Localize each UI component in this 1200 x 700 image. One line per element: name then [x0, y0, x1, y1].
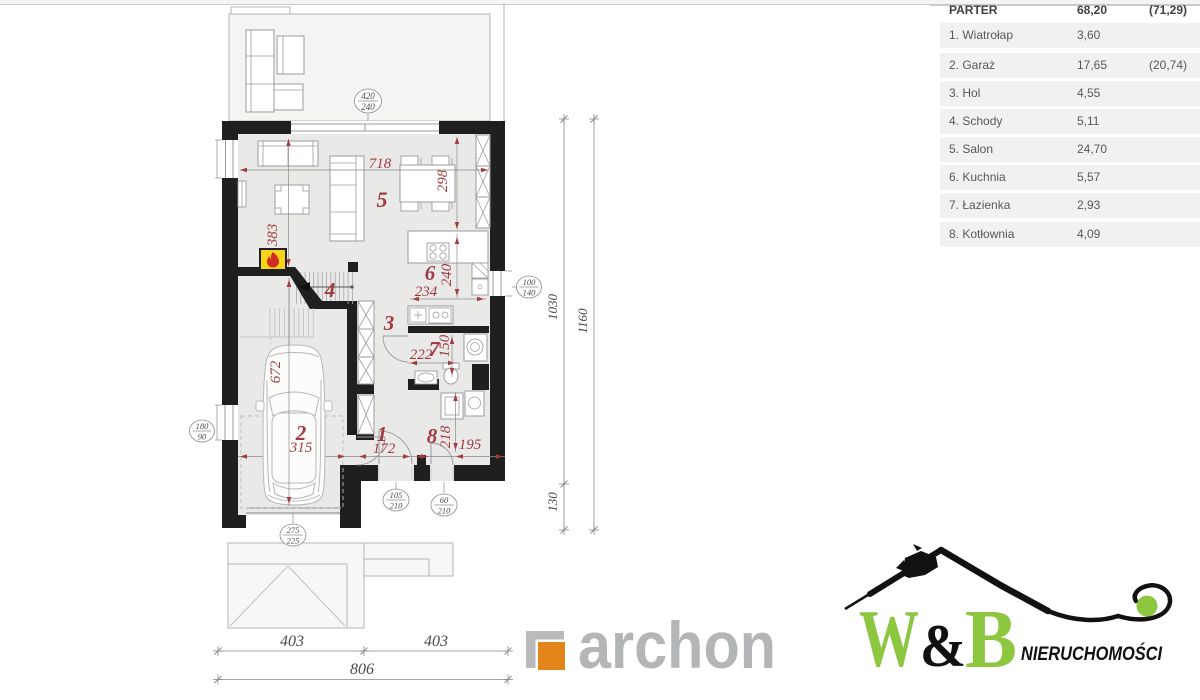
svg-text:225: 225 [287, 536, 300, 546]
svg-text:234: 234 [415, 284, 438, 300]
svg-text:6: 6 [425, 261, 436, 285]
svg-text:90: 90 [198, 432, 207, 442]
svg-text:105: 105 [390, 490, 403, 500]
svg-text:60: 60 [440, 495, 449, 505]
svg-text:8: 8 [427, 424, 438, 448]
svg-text:806: 806 [350, 661, 374, 678]
svg-text:210: 210 [390, 501, 404, 511]
svg-text:298: 298 [435, 169, 451, 192]
svg-text:240: 240 [361, 102, 375, 112]
svg-text:NIERUCHOMOŚCI: NIERUCHOMOŚCI [1021, 643, 1163, 665]
svg-text:archon: archon [578, 608, 776, 682]
svg-text:5: 5 [377, 187, 388, 212]
svg-text:1160: 1160 [575, 308, 590, 334]
svg-text:275: 275 [287, 525, 300, 535]
svg-text:718: 718 [369, 156, 392, 172]
svg-text:240: 240 [439, 263, 455, 286]
svg-text:210: 210 [438, 506, 452, 516]
svg-text:B: B [965, 593, 1017, 686]
svg-text:&: & [920, 613, 966, 679]
svg-text:100: 100 [523, 277, 537, 287]
svg-text:403: 403 [424, 633, 448, 650]
svg-text:W: W [859, 593, 919, 684]
svg-text:140: 140 [523, 288, 537, 298]
svg-text:383: 383 [265, 224, 281, 248]
svg-text:403: 403 [280, 633, 304, 650]
svg-text:420: 420 [361, 91, 375, 101]
svg-text:3: 3 [383, 311, 395, 335]
svg-text:130: 130 [545, 492, 560, 512]
svg-text:672: 672 [268, 360, 284, 383]
svg-text:180: 180 [196, 421, 210, 431]
svg-text:150: 150 [437, 334, 453, 357]
svg-text:1030: 1030 [545, 294, 560, 321]
svg-text:4: 4 [324, 278, 336, 302]
svg-text:172: 172 [373, 441, 396, 457]
svg-text:315: 315 [289, 440, 313, 456]
svg-text:218: 218 [438, 425, 454, 448]
svg-text:195: 195 [459, 437, 482, 453]
